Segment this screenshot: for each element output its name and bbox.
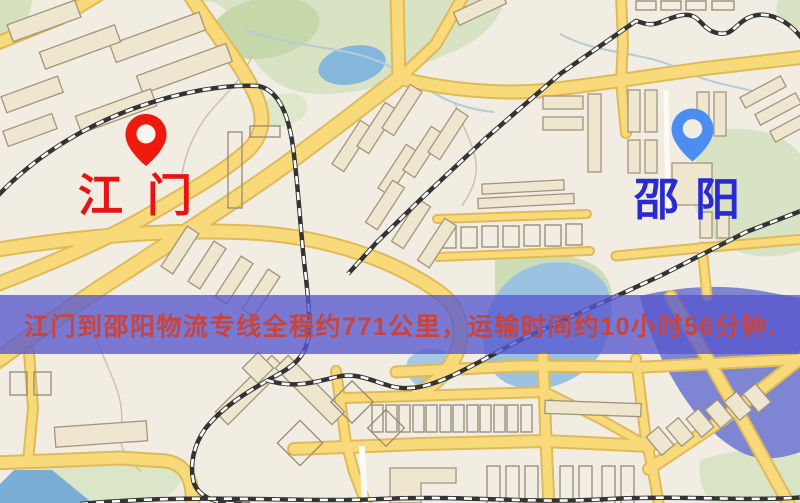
map-canvas[interactable]: 江门 邵阳 江门到邵阳物流专线全程约771公里，运输时间约10小时56分钟.: [0, 0, 800, 503]
origin-city-label: 江门: [78, 173, 216, 218]
base-map: [0, 0, 800, 503]
origin-pin-icon[interactable]: [120, 107, 172, 173]
destination-city-label: 邵阳: [634, 177, 756, 222]
route-info-text: 江门到邵阳物流专线全程约771公里，运输时间约10小时56分钟.: [0, 307, 776, 343]
destination-pin-icon[interactable]: [666, 101, 719, 169]
route-info-banner: 江门到邵阳物流专线全程约771公里，运输时间约10小时56分钟.: [0, 295, 800, 354]
